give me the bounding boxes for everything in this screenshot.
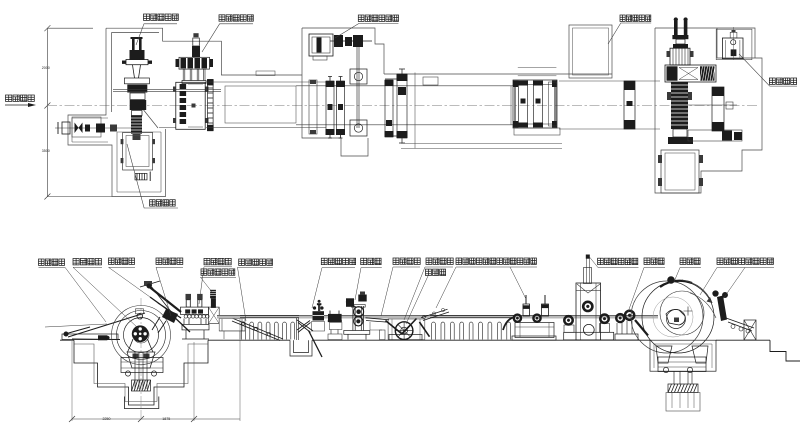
svg-text:1875: 1875: [162, 417, 170, 421]
svg-text:2000: 2000: [42, 66, 50, 70]
svg-text:3500: 3500: [42, 149, 50, 153]
svg-text:2250: 2250: [103, 417, 111, 421]
